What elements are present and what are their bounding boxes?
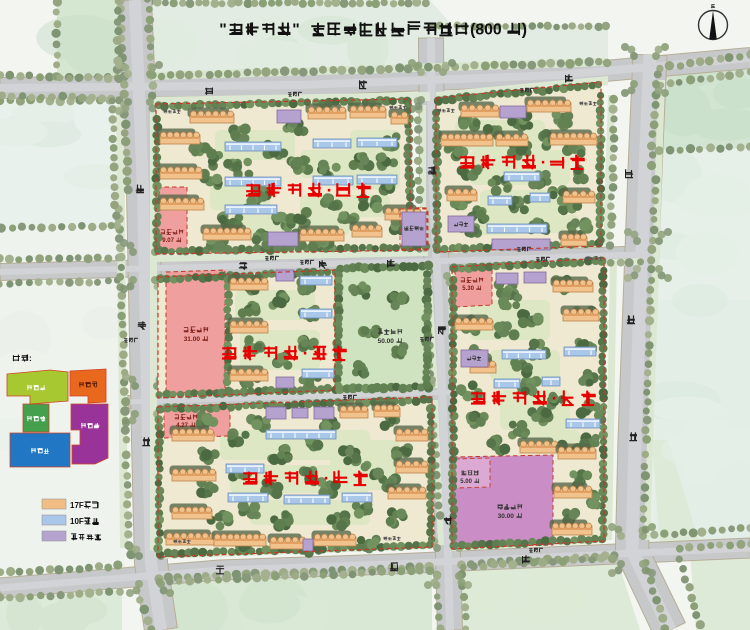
svg-text:4.27: 4.27: [176, 423, 188, 429]
svg-text:": ": [292, 22, 300, 39]
svg-text:5.00: 5.00: [460, 479, 472, 485]
svg-text:·: ·: [552, 388, 558, 408]
svg-text:17F: 17F: [70, 501, 84, 510]
svg-text:): ): [522, 22, 527, 39]
svg-text:·: ·: [541, 152, 547, 172]
svg-text:·: ·: [324, 468, 330, 488]
svg-text:(800: (800: [470, 22, 502, 39]
svg-text::: :: [29, 353, 32, 363]
svg-text:31.00: 31.00: [184, 336, 201, 343]
svg-text:10F: 10F: [70, 517, 84, 526]
svg-text:": ": [219, 22, 227, 39]
svg-text:30.00: 30.00: [498, 513, 515, 520]
svg-text:9.07: 9.07: [162, 238, 174, 244]
svg-text:·: ·: [327, 180, 333, 200]
svg-text:5.30: 5.30: [462, 286, 474, 292]
svg-text:50.00: 50.00: [378, 338, 395, 345]
svg-text:·: ·: [303, 343, 309, 363]
